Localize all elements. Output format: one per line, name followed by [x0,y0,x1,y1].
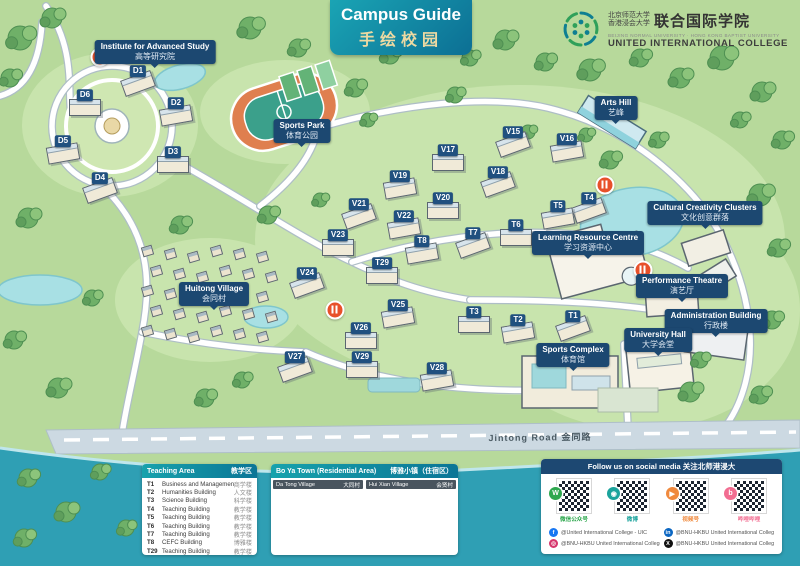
logo-en-main: UNITED INTERNATIONAL COLLEGE [608,38,788,49]
qr-label: 微博 [627,515,638,523]
legend-row [366,489,456,497]
dining-icon [596,176,615,195]
legend-row [366,523,456,531]
building-badge[interactable]: V21 [349,198,369,210]
qr-code [615,479,649,513]
building-badge[interactable]: D3 [165,146,181,158]
qr-code [732,479,766,513]
platform-icon: b [724,487,737,500]
callout-en: Administration Building [671,311,762,320]
legend-row [366,514,456,522]
building-badge[interactable]: V16 [557,133,577,145]
map-callout-label[interactable]: Sports Complex 体育馆 [536,343,609,367]
qr-item: W 微信公众号 [547,479,601,523]
legend-teaching-area: Teaching Area 教学区 T1 Business and Manage… [142,464,257,555]
building-badge[interactable]: V26 [351,322,371,334]
qr-code [674,479,708,513]
building-badge[interactable]: V24 [297,267,317,279]
social-title: Follow us on social media 关注北师港浸大 [588,461,736,472]
legend-row [273,514,363,522]
callout-zh: 体育公园 [280,131,325,141]
building-badge[interactable]: T4 [581,192,596,204]
legend-row [366,506,456,514]
uic-logo: 北京师范大学 香港浸会大学 联合国际学院 BEIJING NORMAL UNIV… [560,8,788,50]
building-badge[interactable]: D2 [168,97,184,109]
legend-row [273,497,363,505]
qr-item: ▶ 视频号 [664,479,718,523]
building-badge[interactable]: D5 [55,135,71,147]
legend-row [273,489,363,497]
legend-row [366,497,456,505]
building-badge[interactable]: T8 [414,235,429,247]
building-badge[interactable]: T1 [565,310,580,322]
qr-label: 哔哩哔哩 [738,515,760,523]
callout-zh: 大学会堂 [630,340,686,350]
platform-icon: W [549,487,562,500]
building-badge[interactable]: T6 [508,219,523,231]
building-badge[interactable]: V29 [352,351,372,363]
title-banner: Campus Guide 手绘校园 [330,0,472,55]
building-badge[interactable]: D6 [77,89,93,101]
building-badge[interactable]: V19 [390,170,410,182]
qr-label: 视频号 [682,515,699,523]
building-badge[interactable]: V28 [427,362,447,374]
callout-zh: 文化创意群落 [653,213,756,223]
teaching-title-en: Teaching Area [147,468,194,475]
map-callout-label[interactable]: Huitong Village 会同村 [179,282,249,306]
building-badge[interactable]: D1 [130,65,146,77]
building-badge[interactable]: V27 [285,351,305,363]
building-badge[interactable]: V18 [488,166,508,178]
callout-en: Performance Theatre [642,276,722,285]
legend-row [273,539,363,547]
social-account[interactable]: f @United International College - UIC [549,528,660,537]
legend-row [366,531,456,539]
social-platform-icon: ◎ [549,539,558,548]
logo-zh-main: 联合国际学院 [654,10,750,31]
callout-zh: 高等研究院 [101,52,210,62]
map-callout-label[interactable]: Institute for Advanced Study 高等研究院 [95,40,216,64]
social-media-panel: Follow us on social media 关注北师港浸大 W 微信公众… [541,459,782,554]
dining-icon [326,301,345,320]
callout-en: Cultural Creativity Clusters [653,203,756,212]
village-column: Da Tong Village 大同村 [273,480,363,555]
map-callout-label[interactable]: Cultural Creativity Clusters 文化创意群落 [647,201,762,225]
platform-icon: ▶ [666,487,679,500]
social-platform-icon: in [664,528,673,537]
legend-row [273,523,363,531]
map-callout-label[interactable]: Performance Theatre 演艺厅 [636,274,728,298]
building-badge[interactable]: V23 [328,229,348,241]
building-badge[interactable]: T7 [465,227,480,239]
social-platform-icon: X [664,539,673,548]
social-account[interactable]: ◎ @BNU-HKBU United International College [549,539,660,548]
map-callout-label[interactable]: Sports Park 体育公园 [274,119,331,143]
logo-zh-line2: 香港浸会大学 [608,20,650,28]
building-badge[interactable]: T2 [510,314,525,326]
qr-item: ◉ 微博 [605,479,659,523]
callout-zh: 演艺厅 [642,286,722,296]
qr-code [557,479,591,513]
social-handle: @BNU-HKBU United International College [561,541,660,547]
building-badge[interactable]: V25 [388,299,408,311]
callout-en: Institute for Advanced Study [101,42,210,51]
map-callout-label[interactable]: University Hall 大学会堂 [624,328,692,352]
callout-en: University Hall [630,330,686,339]
building-badge[interactable]: T3 [466,306,481,318]
callout-en: Learning Resource Centre [538,233,638,242]
residential-title-zh: 博雅小镇（住宿区） [390,466,453,476]
legend-residential-area: Bo Ya Town (Residential Area) 博雅小镇（住宿区） … [271,464,458,555]
building-badge[interactable]: T29 [372,257,392,269]
building-badge[interactable]: V15 [503,126,523,138]
page-title-en: Campus Guide [341,5,461,25]
logo-zh-line1: 北京师范大学 [608,12,650,20]
village-column: Hui Xian Village 会贤村 [366,480,456,555]
social-handle: @BNU-HKBU United International College [676,530,775,536]
legend-row: T29 Teaching Building 教学楼 [142,547,257,555]
map-callout-label[interactable]: Arts Hill 艺峰 [595,96,638,120]
social-account[interactable]: X @BNU-HKBU United International College [664,539,775,548]
legend-row [366,539,456,547]
callout-en: Arts Hill [601,98,632,107]
callout-zh: 会同村 [185,294,243,304]
building-badge[interactable]: T5 [550,200,565,212]
building-badge[interactable]: V17 [438,144,458,156]
callout-en: Huitong Village [185,284,243,293]
page-title-zh: 手绘校园 [359,26,443,50]
qr-label: 微信公众号 [560,515,588,523]
qr-item: b 哔哩哔哩 [722,479,776,523]
callout-zh: 艺峰 [601,108,632,118]
callout-zh: 学习资源中心 [538,243,638,253]
callout-en: Sports Complex [542,345,603,354]
teaching-title-zh: 教学区 [231,466,252,476]
social-handle: @BNU-HKBU United International College [676,541,775,547]
road-label: Jintong Road 金同路 [488,430,591,444]
building-badge[interactable]: D4 [92,172,108,184]
map-callout-label[interactable]: Learning Resource Centre 学习资源中心 [532,231,644,255]
callout-zh: 体育馆 [542,355,603,365]
residential-title-en: Bo Ya Town (Residential Area) [276,468,376,475]
social-handle: @United International College - UIC [561,530,647,536]
uic-logo-icon [560,8,602,50]
legend-row [273,506,363,514]
campus-map: D1D2D3D4D5D6V15V16V17V18V19V20V21V22V23V… [0,0,800,566]
building-badge[interactable]: V20 [433,192,453,204]
legend-row [273,531,363,539]
legend-row [273,548,363,555]
building-badge[interactable]: V22 [394,210,414,222]
social-platform-icon: f [549,528,558,537]
callout-en: Sports Park [280,121,325,130]
social-account[interactable]: in @BNU-HKBU United International Colleg… [664,528,775,537]
